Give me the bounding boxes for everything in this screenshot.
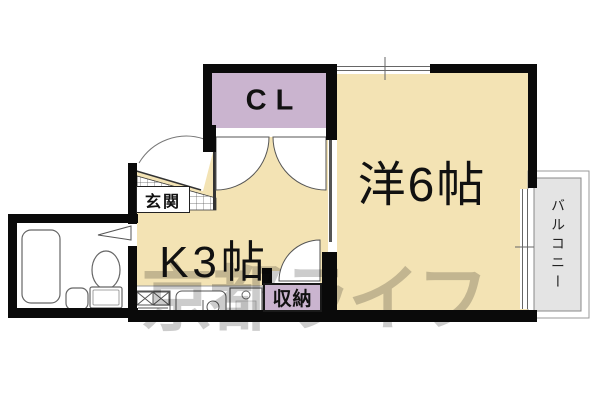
wash-basin-icon xyxy=(66,288,88,310)
bathroom-door-icon xyxy=(98,226,131,240)
entrance-label: 玄関 xyxy=(136,186,190,213)
kitchen-label: K3帖 xyxy=(159,226,269,290)
closet-label: CL xyxy=(246,85,303,118)
western-room-label: 洋6帖 xyxy=(358,145,487,215)
bathroom-fixtures xyxy=(22,230,122,310)
floorplan-canvas: 京都ライフ xyxy=(0,0,600,400)
toilet-icon xyxy=(90,251,122,308)
closet-threshold xyxy=(216,128,326,137)
balcony-label: バルコニー xyxy=(548,186,568,304)
floorplan-drawing: 京都ライフ xyxy=(0,0,600,400)
storage-label: 収納 xyxy=(263,283,322,312)
bathtub-icon xyxy=(22,230,60,303)
